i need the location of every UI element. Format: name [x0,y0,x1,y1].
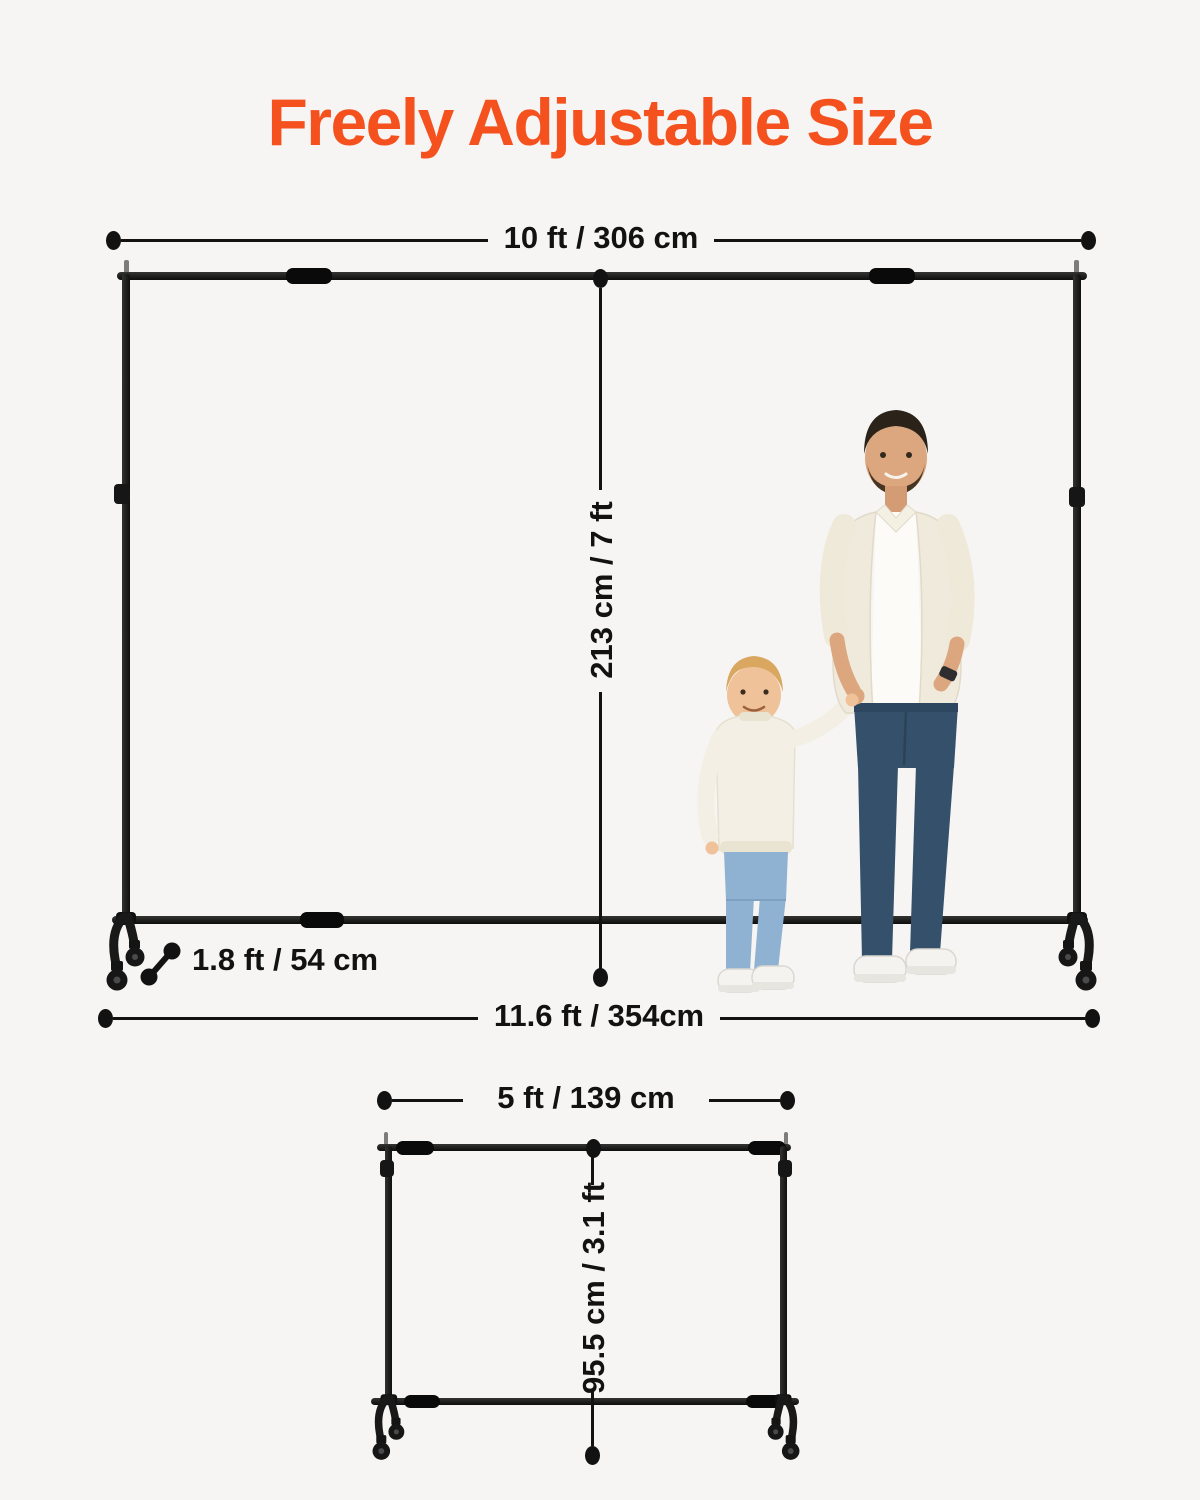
dimension-line-segment [392,1099,463,1102]
dimension-line-segment [720,1017,1085,1020]
crossbar-joint [396,1141,434,1155]
dimension-endpoint-dot [585,1446,600,1465]
dimension-endpoint-dot [1081,231,1096,250]
dimension-line-small-width: 5 ft / 139 cm [377,1087,795,1113]
pole-height-clamp [1069,487,1085,507]
caster-foot-icon [342,1394,434,1468]
dimension-endpoint-dot [98,1009,113,1028]
pole-height-clamp [380,1160,394,1177]
stand-right-pole [1073,274,1081,924]
dimension-line-segment [121,239,488,242]
dimension-label-base-depth: 1.8 ft / 54 cm [192,942,378,978]
small-stand-right-pole [780,1146,787,1404]
dimension-label-small-height: 95.5 cm / 3.1 ft [576,1182,612,1394]
caster-foot-icon [738,1394,830,1468]
man-and-child-illustration [640,400,1060,1010]
dimension-endpoint-dot [593,968,608,987]
product-infographic: Freely Adjustable Size 10 ft / 306 cm [0,0,1200,1500]
crossbar-joint [869,268,915,284]
dimension-line-segment [709,1099,780,1102]
dimension-label-height: 213 cm / 7 ft [584,501,620,678]
crossbar-joint [300,912,344,928]
crossbar-joint [286,268,332,284]
dimension-line-segment [714,239,1081,242]
dimension-endpoint-dot [106,231,121,250]
dimension-line-segment [113,1017,478,1020]
small-stand-left-pole [385,1146,392,1404]
page-title: Freely Adjustable Size [0,84,1200,160]
dimension-endpoint-dot [593,269,608,288]
small-stand-foot-left [342,1394,434,1473]
small-stand-foot-right [738,1394,830,1473]
stand-left-pole [122,274,130,924]
dimension-line-segment [591,1157,594,1185]
base-depth-dimension-icon [138,940,184,988]
dimension-endpoint-dot [1085,1009,1100,1028]
dimension-endpoint-dot [377,1091,392,1110]
dimension-endpoint-dot [586,1139,601,1158]
small-stand-top-crossbar [377,1144,791,1151]
dimension-endpoint-dot [780,1091,795,1110]
dimension-line-segment [599,692,602,970]
pole-height-clamp [778,1160,792,1177]
pole-height-clamp [114,484,130,504]
dimension-label-top-width: 10 ft / 306 cm [488,220,715,256]
dimension-line-top-width: 10 ft / 306 cm [106,227,1096,253]
dimension-line-segment [599,288,602,490]
dimension-line-segment [591,1390,594,1446]
dimension-label-small-width: 5 ft / 139 cm [463,1080,708,1116]
